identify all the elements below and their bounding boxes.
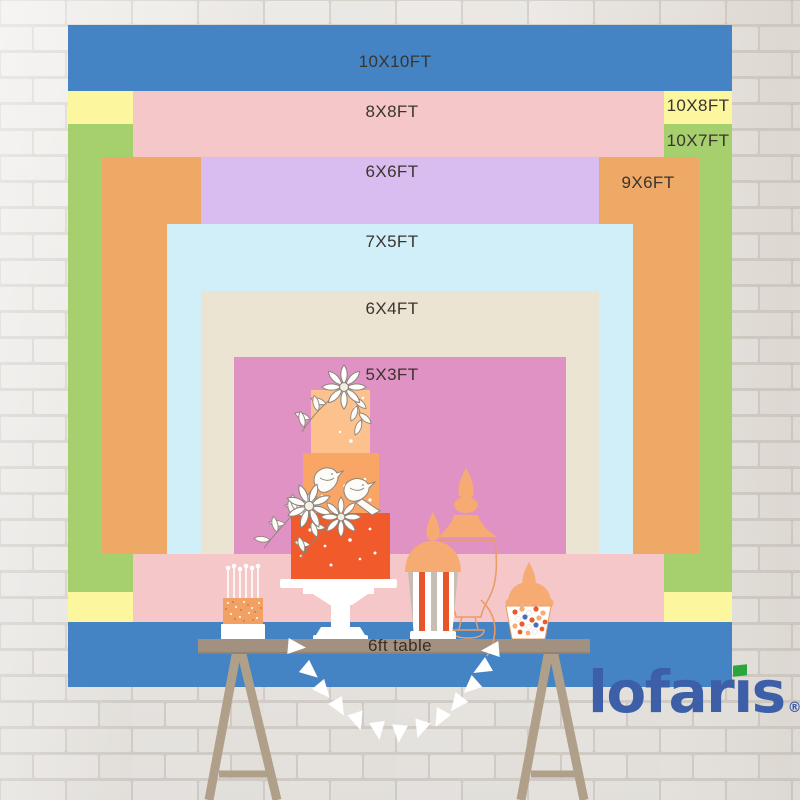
size-labels: 10X10FT10X8FT10X7FT8X8FT9X6FT6X6FT7X5FT6…: [0, 0, 800, 800]
size-label-8x8ft: 8X8FT: [365, 102, 418, 122]
size-label-10x10ft: 10X10FT: [359, 52, 432, 72]
size-label-5x3ft: 5X3FT: [365, 365, 418, 385]
size-label-10x8ft: 10X8FT: [667, 96, 730, 116]
size-label-6x4ft: 6X4FT: [365, 299, 418, 319]
size-label-9x6ft: 9X6FT: [621, 173, 674, 193]
table-size-label: 6ft table: [368, 636, 432, 656]
backdrop-size-chart: 10X10FT10X8FT10X7FT8X8FT9X6FT6X6FT7X5FT6…: [0, 0, 800, 800]
size-label-6x6ft: 6X6FT: [365, 162, 418, 182]
size-label-7x5ft: 7X5FT: [365, 232, 418, 252]
size-label-10x7ft: 10X7FT: [667, 131, 730, 151]
